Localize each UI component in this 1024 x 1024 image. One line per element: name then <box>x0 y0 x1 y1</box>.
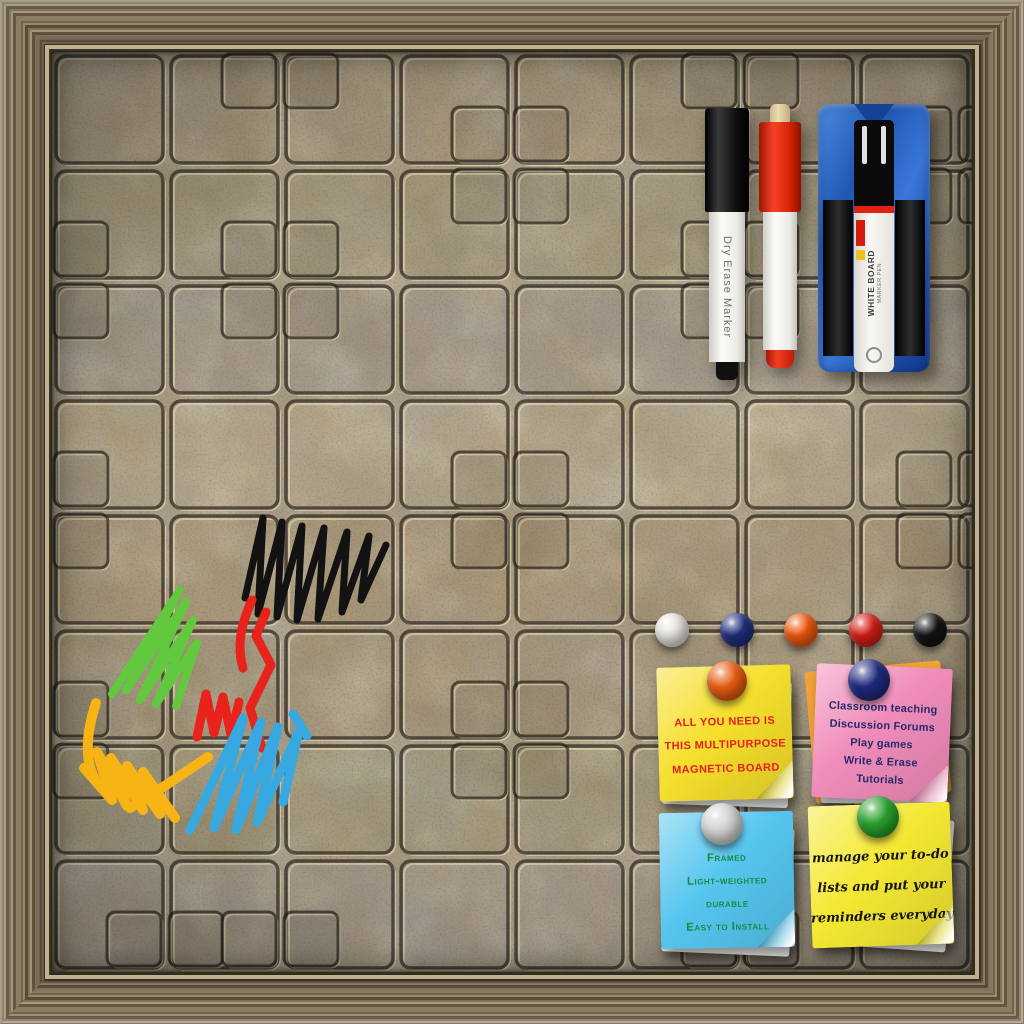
red-marker-body <box>763 212 797 350</box>
black-marker-end <box>716 362 738 380</box>
whiteboard-marker-label: WHITE BOARD <box>866 250 876 316</box>
frame-right <box>972 0 1024 1024</box>
black-marker-cap <box>705 108 749 212</box>
note-line: magnetic board <box>672 756 780 782</box>
eraser-felt-pad-right <box>895 200 925 356</box>
magnet-pin-orange <box>784 613 818 647</box>
whiteboard-marker-band <box>854 206 894 213</box>
note-pin-silver <box>701 803 743 845</box>
magnet-pin-white <box>655 613 689 647</box>
black-dry-erase-marker: Dry Erase Marker <box>704 108 750 380</box>
magnet-pin-black <box>913 613 947 647</box>
note-line: manage your to-do <box>811 840 949 875</box>
eraser-felt-pad-left <box>823 200 853 356</box>
note-line: Framed <box>707 847 747 871</box>
note-pin-navy <box>848 659 890 701</box>
magnet-pin-red <box>849 613 883 647</box>
cap-highlight <box>881 126 886 164</box>
red-marker-grip <box>759 122 801 212</box>
whiteboard-marker-sublabel: MARKER PEN <box>877 263 883 303</box>
note-pin-orange <box>707 661 747 701</box>
frame-bottom <box>0 972 1024 1024</box>
black-marker-body: Dry Erase Marker <box>709 212 745 362</box>
magnet-pin-navy <box>720 613 754 647</box>
framed-magnetic-board-photo: Dry Erase Marker WHITE BOARD MARKER P <box>0 0 1024 1024</box>
whiteboard-marker-body: WHITE BOARD MARKER PEN <box>854 213 894 372</box>
whiteboard-marker-pen: WHITE BOARD MARKER PEN <box>854 120 894 372</box>
note-line: All you need is <box>674 709 776 735</box>
note-line: Light-weighted <box>687 869 767 893</box>
cap-highlight <box>862 126 867 164</box>
note-line: lists and put your <box>817 870 946 904</box>
black-marker-label: Dry Erase Marker <box>721 236 733 338</box>
note-line: Easy to Install <box>686 915 770 939</box>
red-dry-erase-marker <box>758 104 802 368</box>
whiteboard-marker-cap <box>854 120 894 206</box>
magnetic-eraser: WHITE BOARD MARKER PEN <box>818 104 930 372</box>
note-line: durable <box>706 893 749 917</box>
brand-logo-stamp <box>866 347 882 363</box>
note-line: Tutorials <box>856 771 904 791</box>
frame-top <box>0 0 1024 52</box>
red-marker-end-band <box>766 350 794 368</box>
note-line: Write & Erase <box>843 752 918 773</box>
red-marker-nib <box>770 104 790 124</box>
frame-left <box>0 0 52 1024</box>
note-line: Discussion Forums <box>829 716 935 738</box>
note-line: this multipurpose <box>664 733 786 760</box>
note-pin-green <box>857 796 899 838</box>
